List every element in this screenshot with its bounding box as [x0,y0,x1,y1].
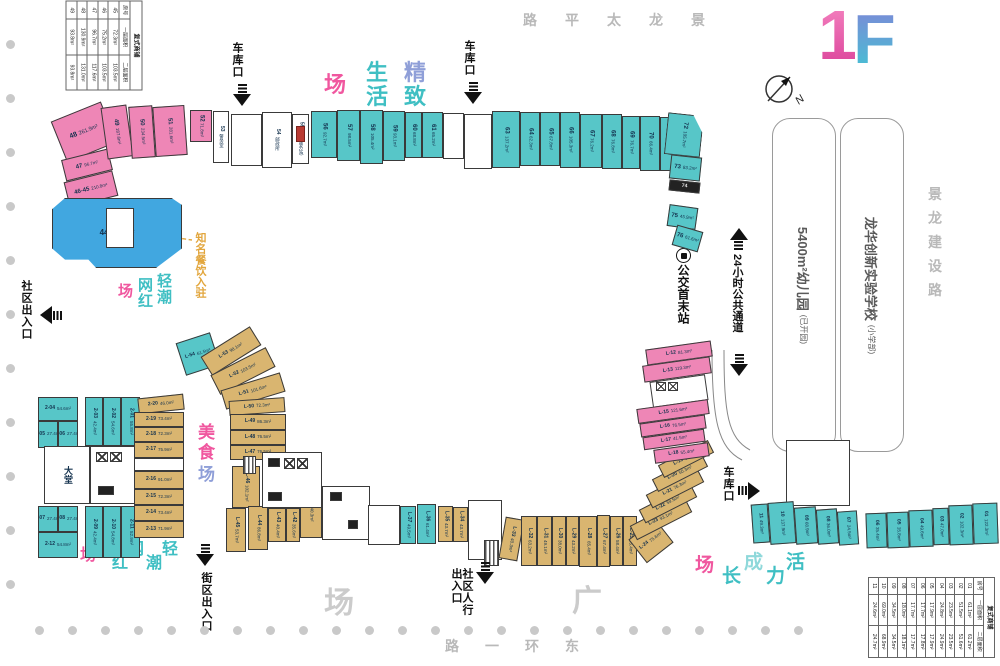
zone-label-qingchao-wanghong-chang-bottom: 红 [112,556,128,572]
community-entrance-left-label: 社区出入口 [20,280,31,342]
unit-area: 24.5m² [845,525,851,539]
unit-number: 63 [503,127,510,134]
zone-label-jingzhi-shenghuo-chang: 生 [366,62,388,84]
unit-number: 76 [676,232,684,240]
tree-dot [596,626,605,635]
unit-2-05: 2-0527.4m² [38,421,58,448]
unit-area: 73.4m² [158,417,172,422]
community-entrance-left-arrow [40,306,62,324]
tree-dot [167,626,176,635]
unit-area: 102.1m² [244,485,249,502]
road-label-char: 路 [523,10,537,30]
unit-number: 2-20 [148,402,159,409]
passage-24h-down-arrow [730,354,748,376]
tree-dot [101,626,110,635]
arrow-head [476,572,494,584]
unit-label: 2-1872.3m² [146,432,172,438]
unit-label: L-2767.4m² [601,528,607,554]
unit-area: 72.3m² [256,403,270,409]
plan-block [98,486,114,495]
plan-block [330,492,342,501]
unit-L-28: L-2865.4m² [579,516,597,567]
unit-area: 65.4m² [586,541,591,555]
unit-area: 警务室 [219,134,224,148]
unit-area: 281.6m² [167,127,173,144]
unit-number: L-45 [233,517,239,527]
unit-label: L-51101.6m² [238,384,267,398]
unit-area: 91.0m² [158,478,172,483]
unit-area: 76.7m² [629,140,634,154]
garage-entrance-right-label: 车库口 [722,466,733,504]
unit-label: L-3149.1m² [542,528,548,554]
unit-number: 48 [69,131,79,141]
unit-03: 0347.0m² [932,508,949,546]
unit-area: 58.4m² [614,540,619,554]
plan-block [656,382,666,391]
tree-dot [233,626,242,635]
unit-label: L-1676.5m² [660,421,687,430]
unit-area: 75.9m² [158,448,172,453]
unit-number: 74 [681,183,687,189]
unit-area: 101.6m² [250,384,267,394]
unit-label: 48261.9m² [69,123,100,141]
unit-label: 2-0627.4m² [58,432,78,438]
unit-number: L-37 [405,512,411,522]
unit-number: 67 [588,130,595,137]
tree-dot [134,626,143,635]
kindergarten-parcel: 5400m²幼儿园 (已开园) [772,118,836,452]
unit-area: 43.7m² [443,523,448,537]
unit-74: 74 [669,179,701,193]
unit-L-44: L-4486.8m² [248,506,268,550]
unit-number: 54 [274,129,280,135]
plan-block [134,458,184,471]
bus-stop-icon [676,248,691,263]
unit-L-48: L-4876.5m² [230,430,286,445]
school-name: 龙华创新实验学校 [863,216,882,320]
unit-number: 65 [547,128,554,135]
unit-area: 65.2m² [430,132,435,146]
unit-label: 2-0942.4m² [91,519,97,545]
unit-number: 2-12 [45,542,55,548]
unit-54: 54邮政所 [262,112,292,168]
unit-area: 63.2m² [527,540,532,554]
unit-area: 119.3m² [675,365,692,372]
unit-number: 51 [166,118,173,125]
unit-area: 54.8m² [110,531,115,545]
unit-72: 72105.7m² [664,112,704,158]
unit-area: 96.7m² [84,160,99,168]
unit-number: L-15 [658,409,669,416]
unit-2-02: 2-0254.6m² [103,397,121,446]
unit-area: 187.6m² [114,128,121,145]
unit-label: L-4876.5m² [245,435,271,441]
arrow-head [464,92,482,104]
tree-dot [794,626,803,635]
plan-block [243,456,256,474]
unit-L-49: L-4986.3m² [230,414,286,430]
unit-number: 61 [429,124,436,131]
unit-label: L-4235.6m² [290,512,296,538]
passage-24h-label: 24小时公共通道 [731,254,742,354]
unit-76: 7661.6m² [672,225,704,253]
arrow-head [748,482,760,500]
unit-number: 2-05 [38,432,45,438]
unit-area: 68.9m² [803,522,809,536]
tree-dot [497,626,506,635]
unit-label: 01122.3m² [982,511,988,535]
unit-area: 54.8m² [57,543,71,548]
unit-L-36: L-3661.4m² [417,504,436,544]
unit-number: L-52 [229,370,241,380]
unit-number: 09 [803,515,809,521]
unit-number: 60 [410,124,417,131]
unit-label: 5271.8m² [198,115,205,138]
unit-53: 53警务室 [213,111,229,163]
unit-70: 7066.4m² [640,116,660,171]
tree-dot [563,626,572,635]
unit-L-29: L-2943.2m² [566,516,579,566]
unit-59: 5993.1m² [383,111,405,161]
plan-block [296,126,305,142]
unit-68: 6876.8m² [602,114,622,169]
pedestrian-entrance-bottom-label: 社区人行出入口 [450,568,472,618]
unit-label: 7066.4m² [647,132,654,155]
tree-dot [6,364,15,373]
unit-2-18: 2-1872.3m² [134,427,184,442]
unit-area: 72.3m² [158,432,172,437]
arrow-tail [469,82,478,92]
unit-area: 98.5m² [346,133,351,147]
unit-number: 59 [391,125,398,132]
unit-number: 68 [609,130,616,137]
unit-2-03: 2-0342.4m² [85,397,103,446]
unit-label: 2-0342.4m² [91,408,97,434]
unit-number: 02 [958,513,964,519]
unit-number: L-42 [290,512,296,522]
plan-block [96,452,108,462]
floor-logo: 1F [818,0,896,74]
unit-area: 83.2m² [683,165,697,171]
unit-number: L-36 [424,511,430,521]
zone-label-huoli-chengzhang-chang: 成 [744,553,763,572]
unit-area: 76.8m² [610,139,615,153]
floor-logo-digit: 1 [818,0,857,74]
unit-number: 2-13 [146,527,156,533]
unit-number: 大堂 [62,466,72,484]
unit-number: 64 [527,128,534,135]
tree-dot [6,310,15,319]
unit-number: 10 [778,511,784,517]
unit-label: 2-1254.8m² [45,542,71,548]
unit-number: L-48 [245,435,255,441]
plan-block [106,208,134,248]
unit-09: 0968.9m² [794,506,819,544]
unit-area: 105.7m² [680,131,687,148]
unit-label: L-52103.5m² [229,362,257,380]
unit-63: 63137.2m² [492,111,520,168]
zone-label-qingchao-wanghong-chang-top: 网 [138,278,153,293]
plan-block [786,440,850,506]
unit-label: 58105.4m² [368,124,375,149]
unit-label: 4796.7m² [75,159,99,171]
unit-label: 2-1973.4m² [146,417,172,423]
unit-number: 2-19 [146,417,156,423]
unit-label: L-4553.7m² [233,517,239,543]
zone-label-qingchao-wanghong-chang-top: 场 [118,284,133,299]
unit-05: 0535.8m² [886,512,909,549]
unit-area: 46.0m² [160,400,174,406]
unit-label: 72105.7m² [679,122,688,148]
zone-label-jingzhi-shenghuo-chang: 致 [404,86,426,108]
unit-area: 137.9m² [779,518,785,535]
unit-L-45: L-4553.7m² [226,508,246,552]
road-label-char: 东 [565,636,579,656]
tree-dot [761,626,770,635]
unit-number: L-51 [238,390,249,398]
unit-number: L-43 [274,512,280,522]
unit-label: 6567.8m² [547,128,554,151]
unit-number: L-27 [601,528,607,538]
unit-label: 2-1054.8m² [109,519,115,545]
plaza-char: 广 [572,576,602,620]
unit-label: L-3543.7m² [443,511,449,537]
unit-number: 2-09 [91,519,97,529]
unit-2-14: 2-1473.4m² [134,505,184,521]
unit-area: 38.0m² [557,540,562,554]
arrow-tail [52,311,62,320]
unit-2-13: 2-1371.9m² [134,521,184,538]
unit-number: L-49 [245,419,255,425]
unit-label: 6776.2m² [588,130,595,153]
unit-number: L-33 [509,526,516,537]
unit-2-06: 2-0627.4m² [58,421,78,448]
unit-02: 02102.3m² [948,505,973,546]
unit-label: 7661.6m² [676,232,700,245]
unit-L-30: L-3038.0m² [552,516,566,566]
tree-dot [662,626,671,635]
unit-area: 102.3m² [958,520,964,537]
plan-block [110,452,122,462]
road-label-char: 景 [691,10,705,30]
zone-label-jingzhi-shenghuo-chang: 场 [324,74,346,96]
unit-label: L-2865.4m² [585,528,591,554]
floor-logo-letter: F [853,4,896,74]
unit-number: 07 [845,517,851,523]
unit-大堂: 大堂 [44,446,90,504]
road-label-char: 一 [485,636,499,656]
unit-label: 6876.8m² [609,130,616,153]
unit-area: 71.8m² [199,123,204,137]
unit-L-34: L-3443.7m² [453,507,468,542]
unit-L-27: L-2767.4m² [597,515,610,567]
unit-label: 2-0254.6m² [109,408,115,434]
zone-label-huoli-chengzhang-chang: 力 [766,567,785,586]
unit-label: 54邮政所 [274,129,280,150]
unit-area: 27.4m² [67,432,78,437]
unit-2-19: 2-1973.4m² [134,412,184,427]
plan-block [284,458,295,469]
garage-entrance-top-center-arrow [464,82,482,104]
unit-label: 1149.3m² [757,513,764,535]
kindergarten-sub: (已开园) [799,314,810,343]
unit-area: 40.4m² [275,524,280,538]
unit-area: 66.4m² [648,141,653,155]
unit-number: 2-01 [128,408,134,418]
unit-label: 6165.2m² [429,124,436,147]
unit-label: L-5072.3m² [244,403,271,410]
bus-terminal-label: 公交首末站 [677,264,689,344]
zone-label-huoli-chengzhang-chang: 场 [695,556,714,575]
unit-label: 51281.6m² [166,118,174,144]
unit-67: 6776.2m² [580,114,602,168]
unit-label: 0968.9m² [803,515,810,537]
unit-2-10: 2-1054.8m² [103,506,121,558]
road-label-char: 龙 [649,10,663,30]
arrow-tail [201,544,210,554]
tree-dot [200,626,209,635]
unit-label: 6068.8m² [410,124,417,147]
garage-entrance-top-center-label: 车库口 [463,40,474,82]
unit-51: 51281.6m² [152,105,187,157]
unit-L-43: L-4340.4m² [268,508,286,542]
unit-73: 7383.2m² [669,154,702,181]
unit-number: 2-15 [146,494,156,500]
unit-label: 0535.8m² [895,519,901,541]
unit-area: 27.4m² [67,517,78,522]
unit-label: 10137.9m² [778,511,785,535]
unit-number: L-50 [244,404,255,410]
unit-label: 49187.6m² [112,119,122,145]
unit-number: L-34 [458,511,464,521]
road-label-char: 建 [928,232,942,252]
unit-label: L-3038.0m² [556,528,562,554]
unit-number: 11 [757,513,763,519]
unit-number: 2-11 [128,519,134,529]
unit-number: 2-18 [146,432,156,438]
tree-dot [728,626,737,635]
unit-number: 72 [681,122,688,129]
plan-block [668,382,678,391]
unit-L-26: L-2658.4m² [610,516,623,566]
unit-label: 6462.3m² [527,128,534,151]
road-label-char: 龙 [928,208,942,228]
unit-area: 35.6m² [291,524,296,538]
unit-label: 2-0155.8m² [128,408,134,434]
unit-area: 27.4m² [47,432,58,437]
unit-area: 93.1m² [392,133,397,147]
kindergarten-name: 5400m²幼儿园 [795,226,814,310]
unit-number: 70 [647,132,654,139]
unit-number: 73 [674,164,681,171]
unit-label: 大堂 [62,466,72,484]
unit-number: L-28 [585,528,591,538]
unit-label: L-3443.7m² [458,511,464,537]
unit-number: 75 [671,212,679,219]
unit-number: 69 [628,131,635,138]
unit-label: 6976.7m² [628,131,635,154]
unit-area: 41.5m² [673,435,688,442]
unit-L-32: L-3263.2m² [521,516,537,566]
unit-area: 40.3m² [507,538,514,553]
unit-area: 49.3m² [758,520,764,534]
zone-label-jingzhi-shenghuo-chang: 精 [404,62,426,84]
unit-52: 5271.8m² [190,110,212,142]
unit-57: 5798.5m² [337,110,360,161]
unit-area: 45.9m² [680,214,695,221]
unit-number: 06 [873,520,879,526]
unit-label: 0724.5m² [845,517,852,539]
unit-2-15: 2-1572.3m² [134,489,184,505]
unit-number: 2-16 [146,477,156,483]
unit-number: 2-06 [58,432,65,438]
zone-label-huoli-chengzhang-chang: 活 [786,553,805,572]
unit-area: 43.2m² [570,540,575,554]
unit-label: 66105.3m² [567,127,574,152]
unit-08: 0836.0m² [816,508,839,544]
zone-label-meishi-chang: 食 [198,444,215,461]
tree-dot [629,626,638,635]
unit-area: 27.4m² [47,517,58,522]
unit-label: 5692.7m² [321,123,328,146]
unit-number: L-24 [639,541,650,552]
unit-number: 08 [824,516,830,522]
zone-label-meishi-chang: 场 [198,466,215,483]
unit-label: 46-45210.8m² [74,182,108,197]
plan-block [268,458,280,467]
unit-label: 53警务室 [218,126,224,147]
unit-label: 2-0454.6m² [45,406,71,412]
unit-area: 52.9m² [128,531,133,545]
unit-number: 58 [368,124,375,131]
unit-area: 86.8m² [256,527,261,541]
tree-dot [6,526,15,535]
plan-block [268,492,282,501]
passage-24h-up-arrow [730,228,748,250]
unit-number: 66 [567,127,574,134]
unit-number: L-18 [668,451,679,458]
unit-label: 2-1691.0m² [146,477,172,483]
unit-area: 36.0m² [825,523,831,537]
unit-65: 6567.8m² [540,112,560,166]
unit-label: L-3661.4m² [424,511,430,537]
zone-label-huoli-chengzhang-chang: 长 [722,567,741,586]
unit-number: L-32 [526,528,532,538]
unit-label: 2-0727.4m² [38,516,58,522]
tree-dot [695,626,704,635]
unit-area: 105.4m² [369,133,374,150]
unit-area: 67.8m² [548,136,553,150]
unit-58: 58105.4m² [360,110,383,164]
unit-area: 121.6m² [671,407,688,414]
unit-label: 2-0527.4m² [38,432,58,438]
tree-dot [6,472,15,481]
unit-area: 67.4m² [601,540,606,554]
unit-number: L-26 [614,528,620,538]
unit-number: L-12 [666,351,677,358]
road-label-char: 路 [928,280,942,300]
unit-number: 56 [321,123,328,130]
unit-07: 0724.5m² [837,510,859,545]
arrow-tail [238,84,247,94]
unit-2-17: 2-1775.9m² [134,442,184,458]
unit-number: L-46 [243,473,249,483]
unit-L-35: L-3543.7m² [438,506,453,542]
unit-label: L-4986.3m² [245,419,271,425]
unit-label: 2-0827.4m² [58,516,78,522]
unit-area: 55.4m² [680,449,695,456]
unit-label: 2-1473.4m² [146,510,172,516]
